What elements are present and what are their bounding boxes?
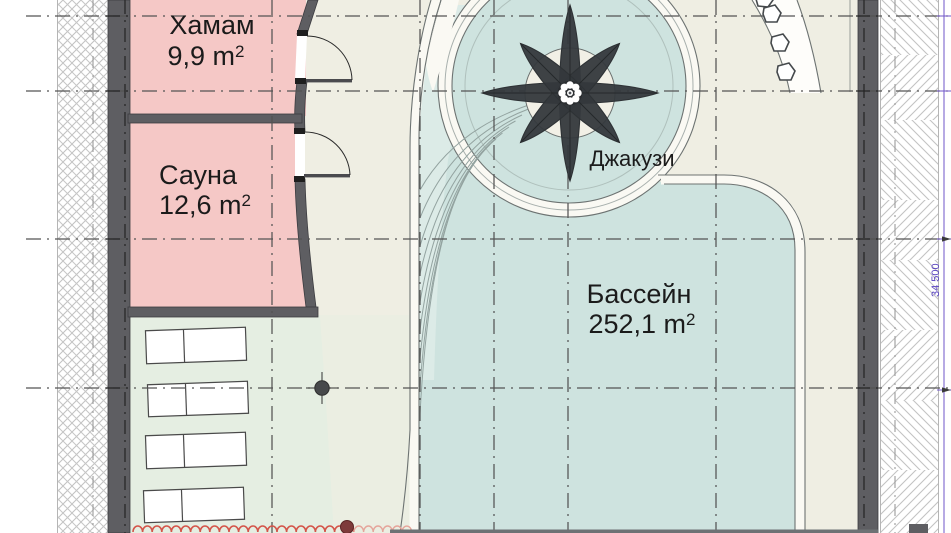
svg-text:12,6 m2: 12,6 m2: [159, 190, 251, 220]
svg-text:9,9 m2: 9,9 m2: [168, 41, 245, 71]
svg-text:Хамам: Хамам: [169, 10, 254, 40]
svg-text:Джакузи: Джакузи: [589, 146, 674, 171]
svg-text:34 500: 34 500: [930, 263, 942, 297]
svg-text:Бассейн: Бассейн: [587, 279, 692, 309]
svg-text:252,1 m2: 252,1 m2: [588, 309, 695, 339]
svg-text:Сауна: Сауна: [159, 160, 238, 190]
